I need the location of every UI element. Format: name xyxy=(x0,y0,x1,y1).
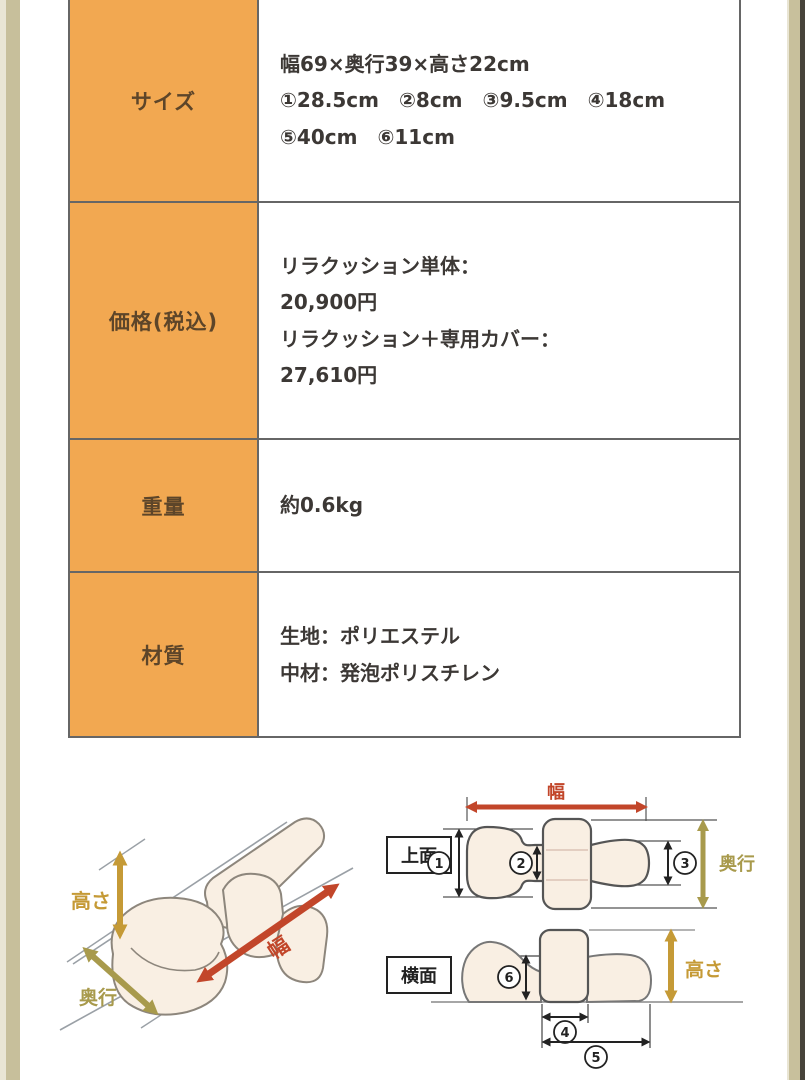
top-view-diagram: 上面 幅 1 xyxy=(383,783,795,933)
row-weight-content: 約0.6kg xyxy=(259,440,739,571)
row-size-label: サイズ xyxy=(70,0,257,201)
size-callouts-line1: ①28.5cm ②8cm ③9.5cm ④18cm xyxy=(280,82,739,119)
size-label-text: サイズ xyxy=(131,86,196,116)
width-label-top: 幅 xyxy=(547,783,565,803)
row-price-content: リラクッション単体： 20,900円 リラクッション＋専用カバー： 27,610… xyxy=(259,203,739,438)
callout-5-number: 5 xyxy=(591,1051,600,1066)
side-view-diagram: 横面 6 4 xyxy=(383,923,795,1080)
height-label-3d: 高さ xyxy=(71,889,111,913)
callout-3-number: 3 xyxy=(680,857,689,872)
size-dimensions-text: 幅69×奥行39×高さ22cm xyxy=(280,46,739,83)
material-filling-text: 中材：発泡ポリスチレン xyxy=(280,655,739,692)
row-size-content: 幅69×奥行39×高さ22cm ①28.5cm ②8cm ③9.5cm ④18c… xyxy=(259,0,739,201)
callout-5-arrow: 5 xyxy=(546,1042,646,1068)
callout-1-number: 1 xyxy=(434,857,443,872)
row-material-label: 材質 xyxy=(70,573,257,736)
callout-2-number: 2 xyxy=(516,857,525,872)
callout-6-number: 6 xyxy=(504,971,513,986)
callout-4-arrow: 4 xyxy=(546,1017,584,1043)
row-price-label: 価格(税込) xyxy=(70,203,257,438)
right-page-edge xyxy=(800,0,805,1080)
product-spec-page: サイズ 幅69×奥行39×高さ22cm ①28.5cm ②8cm ③9.5cm … xyxy=(0,0,805,1080)
depth-label-3d: 奥行 xyxy=(79,986,117,1009)
size-callouts-line2: ⑤40cm ⑥11cm xyxy=(280,119,739,156)
side-view-label-text: 横面 xyxy=(401,965,437,987)
height-label-side: 高さ xyxy=(685,958,723,981)
material-label-text: 材質 xyxy=(142,640,186,670)
row-weight-label: 重量 xyxy=(70,440,257,571)
weight-label-text: 重量 xyxy=(142,491,186,521)
price-item2-name: リラクッション＋専用カバー： xyxy=(280,321,739,358)
depth-label-top: 奥行 xyxy=(719,853,755,875)
left-frame-inner-stripe xyxy=(6,0,20,1080)
cushion-top-shape xyxy=(467,819,649,909)
weight-value: 約0.6kg xyxy=(280,487,739,524)
spec-table: サイズ 幅69×奥行39×高さ22cm ①28.5cm ②8cm ③9.5cm … xyxy=(68,0,741,738)
price-item1-value: 20,900円 xyxy=(280,284,739,321)
callout-3-arrow: 3 xyxy=(668,845,696,881)
price-item2-value: 27,610円 xyxy=(280,357,739,394)
price-label-text: 価格(税込) xyxy=(109,306,218,336)
side-view-label-box: 横面 xyxy=(387,957,451,993)
cushion-3d-diagram: 高さ 奥行 幅 xyxy=(55,772,367,1080)
price-item1-name: リラクッション単体： xyxy=(280,248,739,285)
material-fabric-text: 生地：ポリエステル xyxy=(280,618,739,655)
cushion-side-shape xyxy=(462,930,651,1002)
row-material-content: 生地：ポリエステル 中材：発泡ポリスチレン xyxy=(259,573,739,736)
callout-4-number: 4 xyxy=(560,1026,569,1041)
